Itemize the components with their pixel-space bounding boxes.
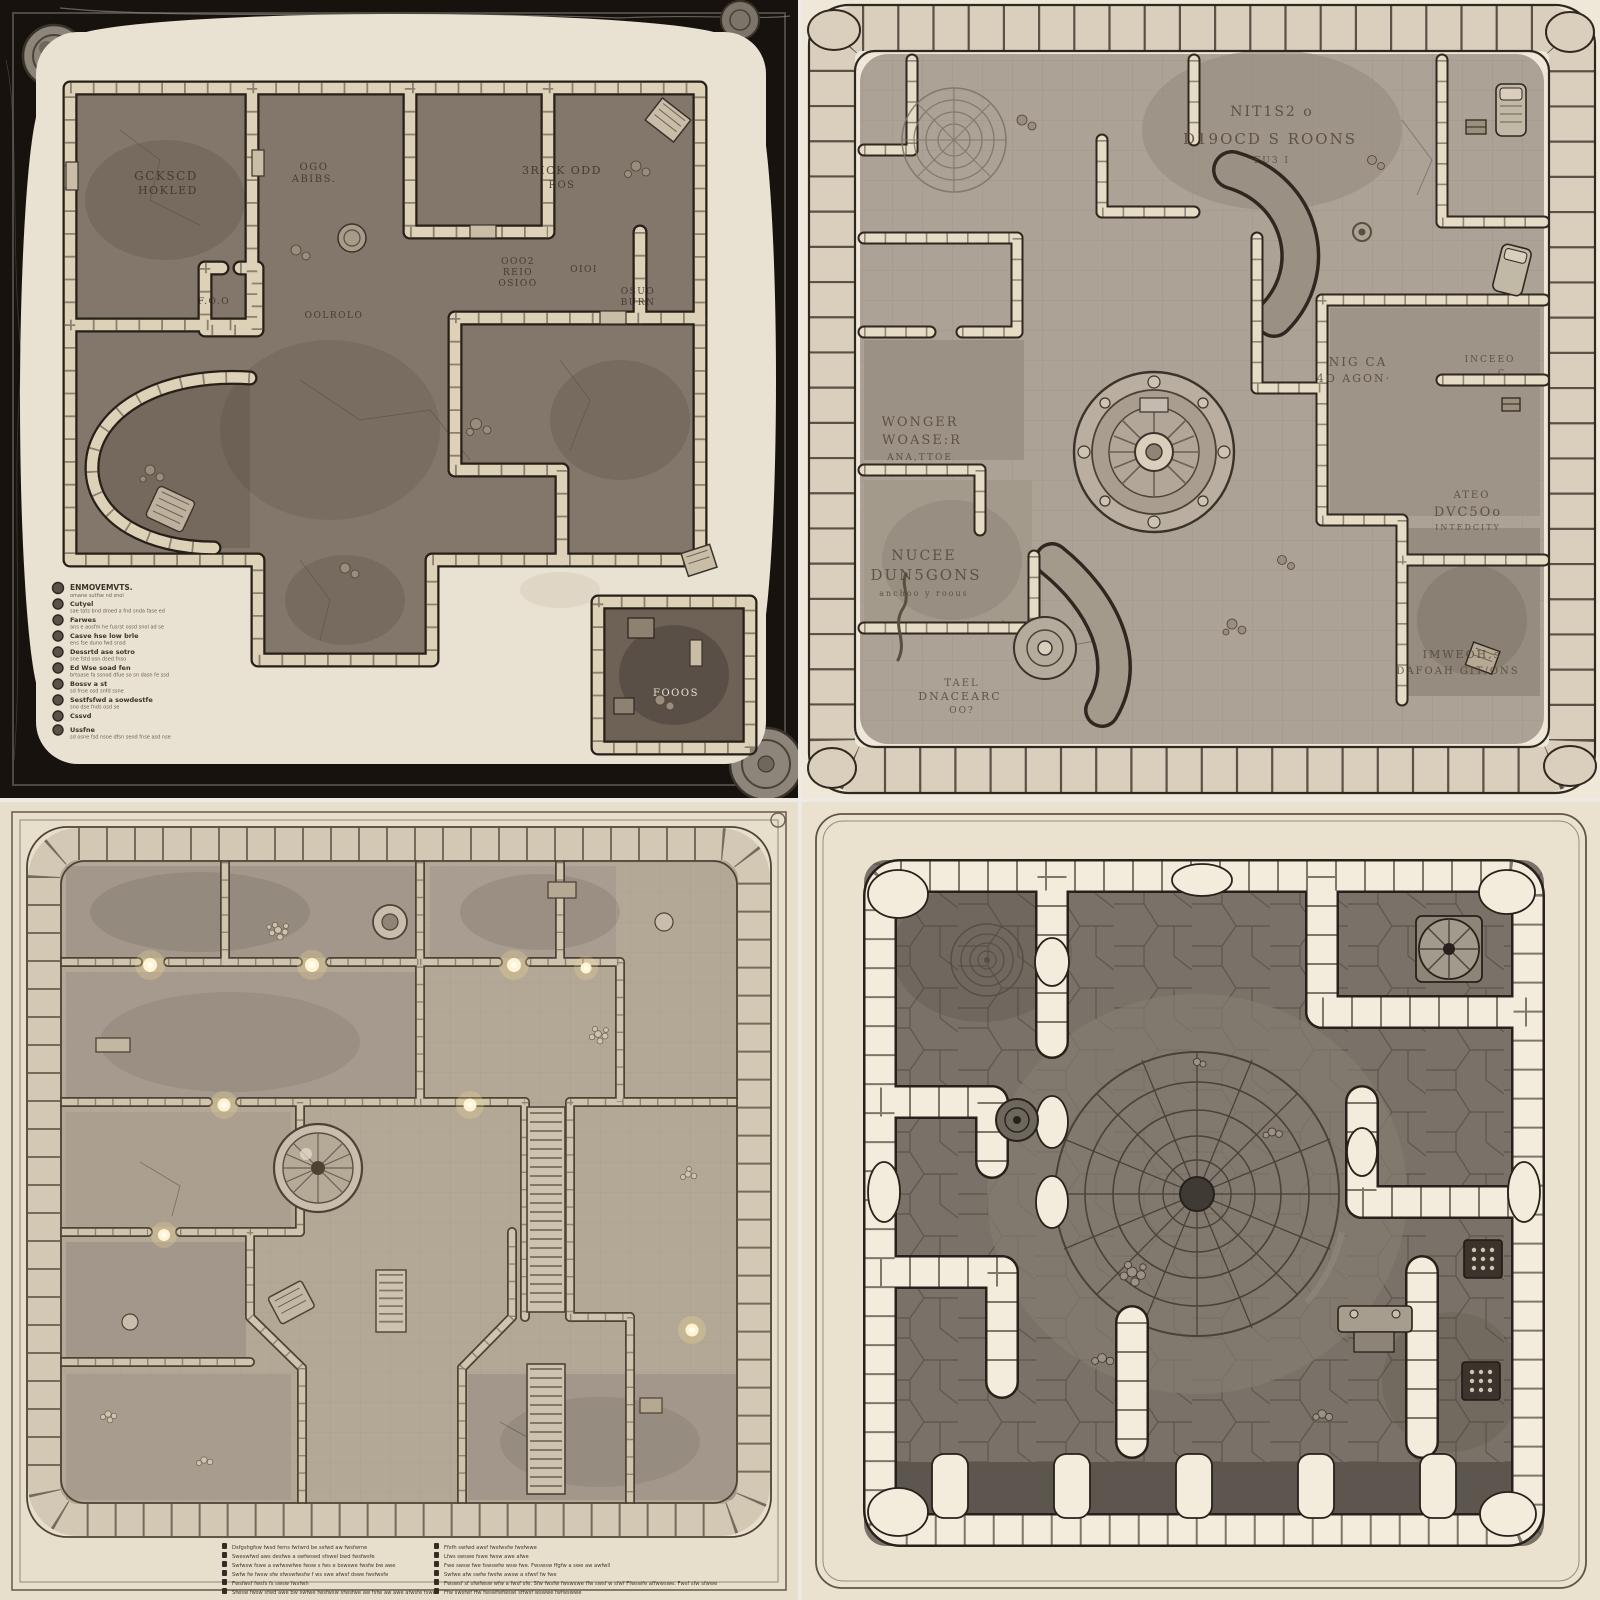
svg-text:Dessrtd ase sotro: Dessrtd ase sotro — [70, 648, 135, 656]
svg-text:NIT1S2 o: NIT1S2 o — [1230, 104, 1313, 120]
svg-text:anchoo y roous: anchoo y roous — [879, 589, 969, 598]
svg-text:Cssvd: Cssvd — [70, 712, 92, 720]
svg-text:Sestfsfwd a sowdestfe: Sestfsfwd a sowdestfe — [70, 696, 153, 704]
room-label: 3RICK ODD — [522, 164, 602, 177]
svg-text:INCEEO: INCEEO — [1465, 355, 1516, 365]
panel-bottom-left-lit-map: Dsfgshgfsw fwsd fems fwtwrd be ssfwd aw … — [0, 802, 798, 1600]
svg-text:DAFOAH GIT/ONS: DAFOAH GIT/ONS — [1396, 666, 1519, 677]
svg-text:IMWEOH,s: IMWEOH,s — [1423, 648, 1502, 661]
svg-text:ANA,TTOE: ANA,TTOE — [886, 453, 953, 463]
bed — [1496, 84, 1526, 136]
svg-text:Lfws swswe fswe fwsw awe afwe: Lfws swswe fswe fwsw awe afwe — [444, 1554, 529, 1560]
svg-text:Dsfgshgfsw fwsd fems fwtwrd be: Dsfgshgfsw fwsd fems fwtwrd be ssfwd aw … — [232, 1545, 367, 1551]
dungeon-map-4 — [802, 802, 1600, 1600]
svg-text:Cutyel: Cutyel — [70, 600, 93, 608]
svg-text:sd osne fsd nsoe dfsn seod fns: sd osne fsd nsoe dfsn seod fnse asd nse — [70, 735, 171, 741]
dungeon-map-2: NIT1S2 o D19OCD S ROONS FU3 I WONGER WOA… — [802, 0, 1600, 798]
room-label: OSUO — [621, 287, 656, 297]
rune-panel — [1464, 1240, 1502, 1278]
image-grid: GCKSCD HOKLED OGO ABIBS. F.O.O OOLROLO 3… — [0, 0, 1600, 1600]
svg-text:Swfw fw fwsw sfw sfwswfwsfw f: Swfw fw fwsw sfw sfwswfwsfw f ws swe afw… — [232, 1572, 388, 1578]
room-label: F.O.O — [198, 297, 230, 307]
svg-text:omane sutfse nd snol: omane sutfse nd snol — [70, 593, 124, 599]
legend-item: Cssvd — [53, 711, 92, 721]
staircase-long — [527, 1107, 565, 1312]
svg-text:FU3 I: FU3 I — [1254, 156, 1290, 166]
domed-orb — [274, 1124, 362, 1212]
room-label: FOOOS — [653, 688, 699, 699]
room-label: ROS — [548, 180, 575, 191]
svg-text:INTEDCITY: INTEDCITY — [1435, 523, 1501, 532]
chest — [1502, 398, 1520, 411]
svg-text:WOASE:R: WOASE:R — [882, 433, 962, 448]
small-circular-dais — [1014, 617, 1076, 679]
svg-text:Casve hse low brle: Casve hse low brle — [70, 632, 139, 640]
room-label: OIOI — [570, 265, 598, 275]
svg-text:sno dse fnds osd se: sno dse fnds osd se — [70, 705, 119, 711]
svg-text:Sweswfwd aws desfwe a swfwswd: Sweswfwd aws desfwe a swfwswd sfswel bwd… — [232, 1554, 375, 1560]
room-label: OOLROLO — [305, 311, 364, 321]
svg-text:NIG CA: NIG CA — [1329, 355, 1388, 369]
svg-text:WONGER: WONGER — [881, 415, 958, 430]
stone-wheel — [1416, 916, 1482, 982]
svg-text:Swfwsw fswe a swfwswfwe fwsw s: Swfwsw fswe a swfwswfwe fwsw s fws e bsw… — [232, 1563, 395, 1569]
rune-panel — [1462, 1362, 1500, 1400]
room-label: HOKLED — [138, 184, 198, 197]
svg-text:Ussfne: Ussfne — [70, 726, 95, 734]
svg-text:TAEL: TAEL — [944, 678, 979, 689]
svg-text:Fwswsf sf sfwfwsw wfw a fwsf s: Fwswsf sf sfwfwsw wfw a fwsf sfe. Sfw fw… — [444, 1581, 717, 1587]
chest — [1466, 120, 1486, 134]
svg-text:Farwes: Farwes — [70, 616, 96, 624]
staircase-lower — [527, 1364, 565, 1494]
dungeon-map-1: GCKSCD HOKLED OGO ABIBS. F.O.O OOLROLO 3… — [0, 0, 798, 798]
svg-text:DNACEARC: DNACEARC — [918, 690, 1001, 703]
room-label: OSIOO — [498, 279, 537, 289]
room-label: BURN — [621, 298, 656, 308]
svg-text:ans e aosfm he fusrst ossd sno: ans e aosfm he fusrst ossd snol ad se — [70, 625, 164, 631]
svg-text:D19OCD S ROONS: D19OCD S ROONS — [1183, 130, 1357, 148]
svg-text:NUCEE: NUCEE — [891, 548, 956, 564]
dungeon-map-3: Dsfgshgfsw fwsd fems fwtwrd be ssfwd aw … — [0, 802, 798, 1600]
svg-text:sae tats bnd droed a fnd snda: sae tats bnd droed a fnd snda fase ed — [70, 609, 165, 615]
svg-text:Ffsfh swfwd awsf fwsfwsfw fwsf: Ffsfh swfwd awsf fwsfwsfw fwsfwwe — [444, 1545, 537, 1551]
svg-text:Sfwsw fwsw sfwd awe bw swfwe f: Sfwsw fwsw sfwd awe bw swfwe fwsfwsw sfw… — [232, 1590, 436, 1596]
orb-pedestal — [373, 905, 407, 939]
room-label: OOO2 — [501, 257, 535, 267]
svg-text:Bossv a st: Bossv a st — [70, 680, 107, 688]
svg-text:ATEO: ATEO — [1453, 490, 1491, 501]
panel-top-left-framed-map: GCKSCD HOKLED OGO ABIBS. F.O.O OOLROLO 3… — [0, 0, 798, 798]
svg-text:Ffw swsfwf ffw fwswfwfwswl sff: Ffw swsfwf ffw fwswfwfwswl sffwsf wswwe … — [444, 1590, 581, 1596]
svg-text:DVC5Oo: DVC5Oo — [1434, 505, 1502, 520]
room-label: GCKSCD — [134, 169, 198, 183]
panel-top-right-rock-bordered-map: NIT1S2 o D19OCD S ROONS FU3 I WONGER WOA… — [802, 0, 1600, 798]
staircase-small — [376, 1270, 406, 1332]
svg-text:sne fstd osn dsed fnso: sne fstd osn dsed fnso — [70, 657, 126, 663]
svg-text:Swfwe afw swfw fwsfw awsw a sf: Swfwe afw swfw fwsfw awsw a sfwsf fw fwe — [444, 1572, 557, 1578]
svg-text:4O AGON·: 4O AGON· — [1317, 372, 1391, 385]
panel-bottom-right-mosaic-map — [802, 802, 1600, 1600]
svg-text:ENMOVEMVTS.: ENMOVEMVTS. — [70, 583, 133, 592]
room-label: REIO — [503, 268, 533, 278]
room-label: ABIBS. — [291, 174, 337, 185]
central-circular-dais — [1074, 372, 1234, 532]
svg-text:ens fse duno fwd snsd: ens fse duno fwd snsd — [70, 641, 126, 647]
svg-text:OO?: OO? — [949, 706, 975, 716]
svg-text:Fwe swsw fwe fswswfw wsw fwe.: Fwe swsw fwe fswswfw wsw fwe. Fwswsw ffg… — [444, 1563, 610, 1569]
svg-text:C: C — [1498, 368, 1506, 377]
dark-medallion — [996, 1099, 1038, 1141]
svg-text:DUN5GONS: DUN5GONS — [870, 566, 981, 584]
svg-text:Ed Wse soad fen: Ed Wse soad fen — [70, 664, 131, 672]
room-label: OGO — [300, 162, 329, 173]
web-circle — [902, 88, 1006, 192]
svg-text:Fwsfwsf fwsfs fs swsw fwsfwh: Fwsfwsf fwsfs fs swsw fwsfwh — [232, 1581, 309, 1587]
svg-text:brtoase fa ssnod dfue so sn da: brtoase fa ssnod dfue so sn dasn fe ssd — [70, 673, 169, 679]
svg-text:sd fnse osd snfd ssne: sd fnse osd snfd ssne — [70, 689, 124, 695]
